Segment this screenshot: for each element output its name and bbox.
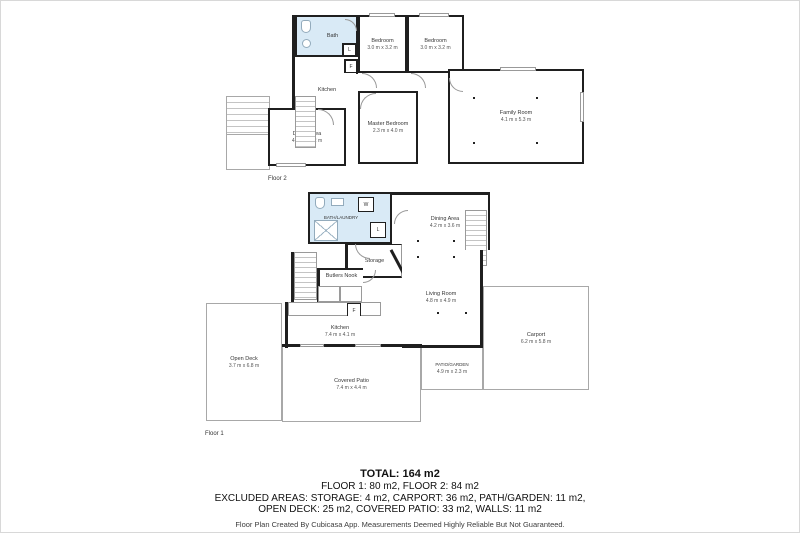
counter bbox=[340, 286, 362, 302]
kitchen-counter bbox=[288, 302, 381, 316]
room-label: Living Room bbox=[426, 291, 457, 297]
room-dims: 2.3 m x 4.0 m bbox=[373, 128, 403, 134]
furniture-dot bbox=[453, 240, 455, 242]
room-label: Bedroom bbox=[371, 38, 393, 44]
top-wall-segment bbox=[392, 192, 402, 195]
stairs-floor1-left bbox=[294, 252, 317, 300]
room-label: Kitchen bbox=[318, 87, 336, 93]
furniture-dot bbox=[453, 256, 455, 258]
room-label: PATIO/GARDEN bbox=[435, 362, 468, 368]
room-dims: 3.0 m x 3.2 m bbox=[420, 45, 450, 51]
shower-icon bbox=[314, 220, 338, 241]
fridge-box-label: F bbox=[349, 64, 352, 70]
room-label: Covered Patio bbox=[334, 378, 369, 384]
door-arc bbox=[394, 210, 408, 224]
door-arc bbox=[411, 73, 426, 88]
sink-icon bbox=[331, 198, 344, 206]
room-label: Bedroom bbox=[424, 38, 446, 44]
floor2-label: Floor 2 bbox=[268, 176, 287, 182]
furniture-dot bbox=[465, 312, 467, 314]
furniture-dot bbox=[437, 312, 439, 314]
sink-icon bbox=[302, 39, 311, 48]
window bbox=[355, 344, 381, 347]
room-label: Bath bbox=[327, 33, 338, 39]
summary-block: TOTAL: 164 m2 FLOOR 1: 80 m2, FLOOR 2: 8… bbox=[0, 468, 800, 529]
room-dims: 3.0 m x 3.2 m bbox=[367, 45, 397, 51]
room-dims: 6.2 m x 5.8 m bbox=[521, 339, 551, 345]
room-dims: 4.1 m x 5.3 m bbox=[501, 117, 531, 123]
floor2-side-deck bbox=[226, 96, 270, 170]
laundry-box-label: L bbox=[348, 47, 351, 53]
window bbox=[500, 67, 536, 71]
toilet-icon bbox=[315, 197, 325, 209]
room-patio-garden: PATIO/GARDEN 4.9 m x 2.3 m bbox=[421, 346, 483, 390]
summary-excluded-1: EXCLUDED AREAS: STORAGE: 4 m2, CARPORT: … bbox=[0, 493, 800, 505]
room-label: Family Room bbox=[500, 110, 532, 116]
room-dims: 4.8 m x 4.9 m bbox=[426, 298, 456, 304]
summary-disclaimer: Floor Plan Created By Cubicasa App. Meas… bbox=[0, 520, 800, 529]
room-label: Kitchen bbox=[331, 325, 349, 331]
window bbox=[580, 92, 584, 122]
furniture-dot bbox=[473, 142, 475, 144]
room-dims: 7.4 m x 4.4 m bbox=[336, 385, 366, 391]
room-bedroom-2: Bedroom 3.0 m x 3.2 m bbox=[407, 15, 464, 73]
door-arc bbox=[363, 270, 376, 283]
room-bath-laundry: W BATH/LAUNDRY L bbox=[308, 192, 392, 244]
furniture-dot bbox=[417, 240, 419, 242]
furniture-dot bbox=[536, 142, 538, 144]
window bbox=[276, 163, 306, 167]
room-open-deck: Open Deck 3.7 m x 6.8 m bbox=[206, 303, 282, 421]
window bbox=[300, 344, 324, 347]
washer-box-label: W bbox=[364, 202, 369, 208]
fridge-box: F bbox=[344, 59, 358, 74]
room-label: Open Deck bbox=[230, 356, 258, 362]
room-dims: 4.9 m x 2.3 m bbox=[437, 369, 467, 375]
room-label: Master Bedroom bbox=[368, 121, 409, 127]
counter bbox=[318, 286, 340, 302]
window bbox=[369, 13, 395, 17]
floor2-plan: Bath L F Bedroom 3.0 m x 3.2 m Bedroom 3… bbox=[268, 12, 586, 172]
room-label: Carport bbox=[527, 332, 545, 338]
floor2-deck-steps bbox=[227, 97, 269, 135]
furniture-dot bbox=[473, 97, 475, 99]
room-family: Family Room 4.1 m x 5.3 m bbox=[448, 69, 584, 164]
room-carport: Carport 6.2 m x 5.8 m bbox=[483, 286, 589, 390]
stairs-floor2 bbox=[295, 96, 316, 148]
door-arc bbox=[362, 73, 377, 88]
laundry-box: L bbox=[370, 222, 386, 238]
room-dims: 4.2 m x 3.6 m bbox=[430, 223, 460, 229]
laundry-box-label: L bbox=[377, 227, 380, 233]
floor1-label: Floor 1 bbox=[205, 431, 224, 437]
furniture-dot bbox=[417, 256, 419, 258]
washer-box: W bbox=[358, 197, 374, 212]
fridge-box-label: F bbox=[352, 308, 355, 314]
summary-excluded-2: OPEN DECK: 25 m2, COVERED PATIO: 33 m2, … bbox=[0, 504, 800, 516]
room-kitchen-floor1: Kitchen 7.4 m x 4.1 m bbox=[290, 316, 390, 346]
room-label: Dining Area bbox=[431, 216, 459, 222]
window bbox=[419, 13, 449, 17]
floor1-plan: Carport 6.2 m x 5.8 m Open Deck 3.7 m x … bbox=[205, 190, 590, 432]
room-bedroom-1: Bedroom 3.0 m x 3.2 m bbox=[358, 15, 407, 73]
furniture-dot bbox=[536, 97, 538, 99]
room-living: Living Room 4.8 m x 4.9 m bbox=[402, 250, 483, 348]
toilet-icon bbox=[301, 20, 311, 33]
room-label: Butlers Nook bbox=[320, 273, 363, 279]
laundry-box: L bbox=[342, 43, 357, 57]
summary-total: TOTAL: 164 m2 bbox=[0, 468, 800, 481]
room-dims: 3.7 m x 6.8 m bbox=[229, 363, 259, 369]
summary-floors: FLOOR 1: 80 m2, FLOOR 2: 84 m2 bbox=[0, 481, 800, 493]
room-dims: 7.4 m x 4.1 m bbox=[325, 332, 355, 338]
room-covered-patio: Covered Patio 7.4 m x 4.4 m bbox=[282, 346, 421, 422]
